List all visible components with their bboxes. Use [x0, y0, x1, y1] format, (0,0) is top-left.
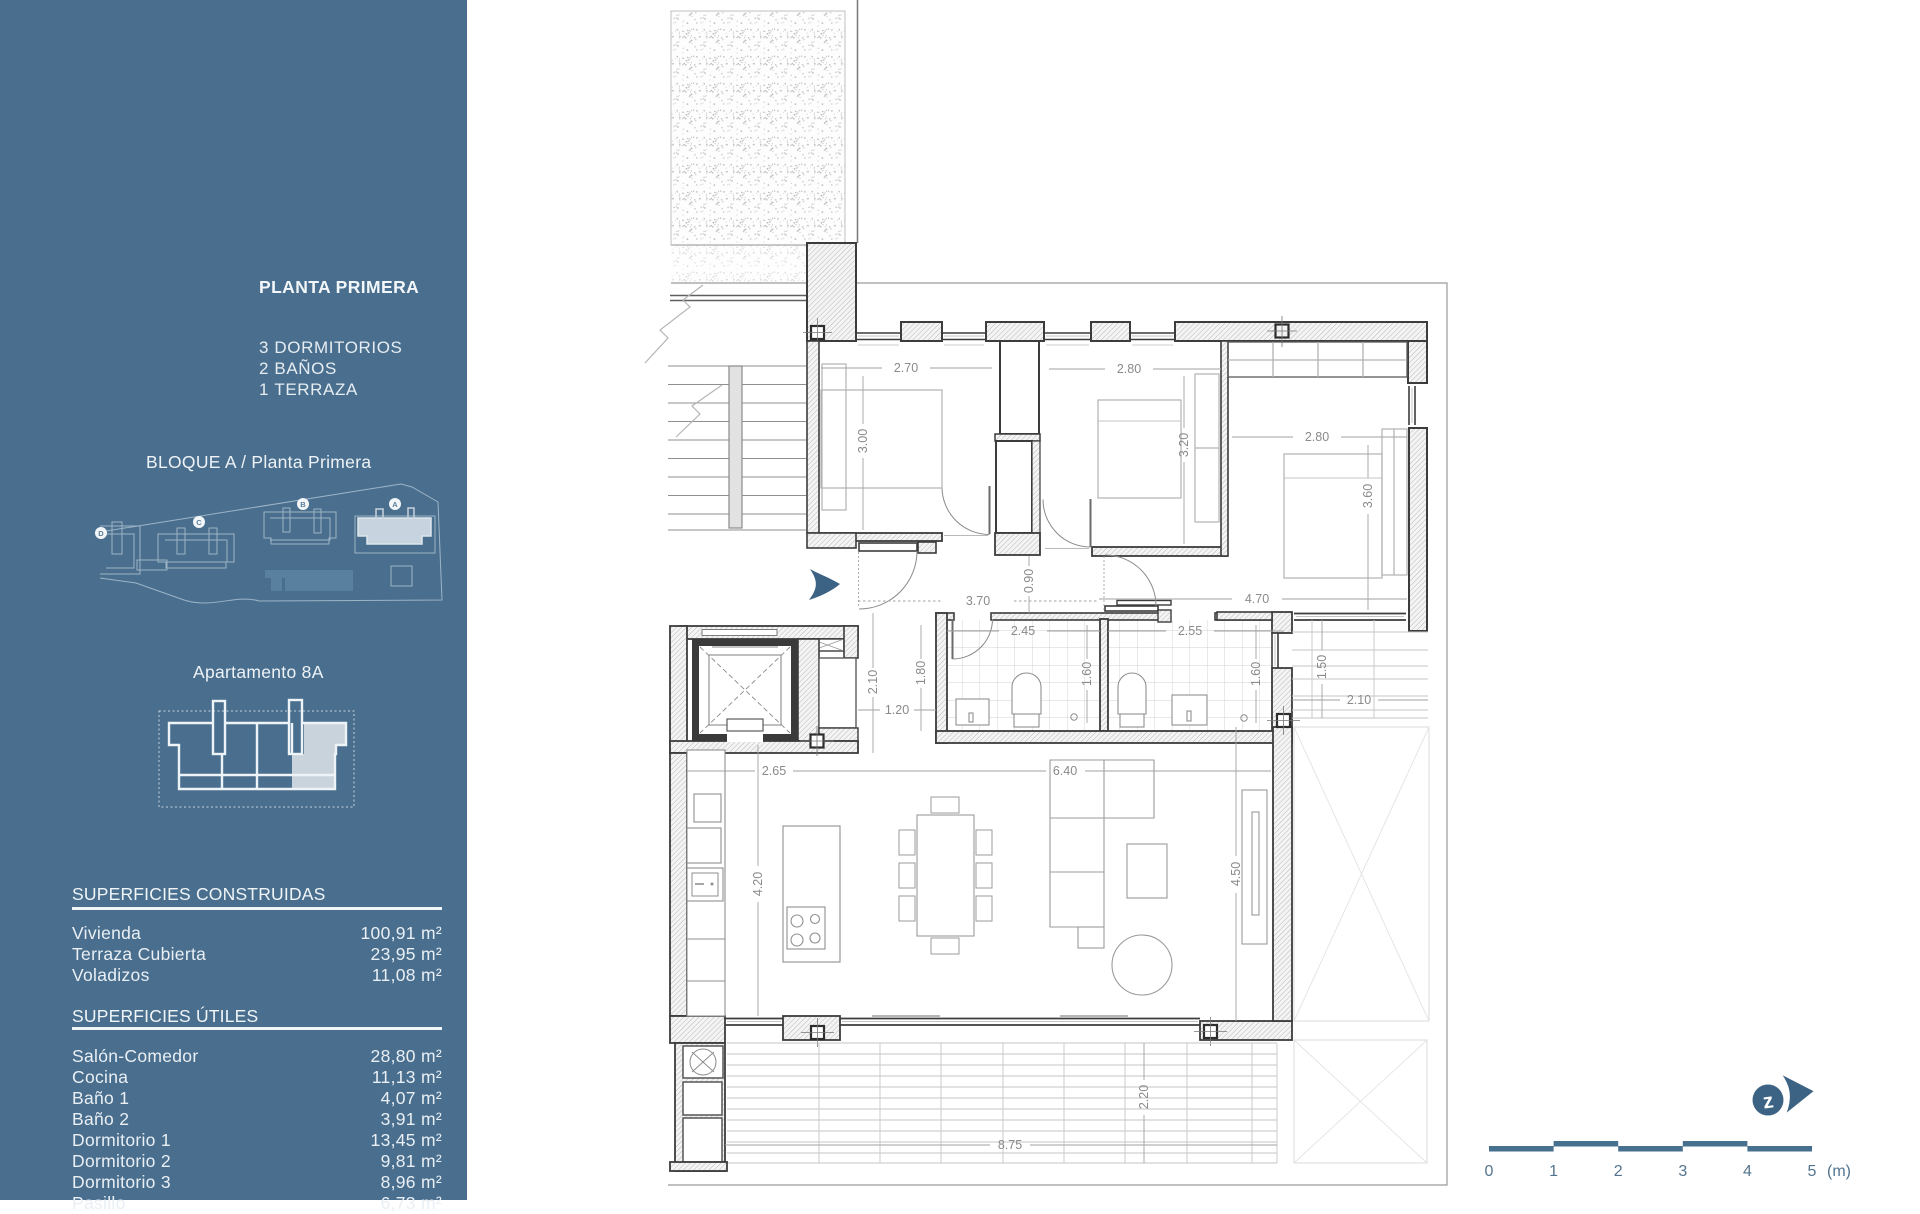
- svg-text:1.80: 1.80: [914, 661, 928, 685]
- svg-text:2.45: 2.45: [1011, 624, 1035, 638]
- svg-text:4: 4: [1743, 1163, 1752, 1180]
- svg-text:3.20: 3.20: [1177, 433, 1191, 457]
- svg-text:0: 0: [1485, 1163, 1494, 1180]
- svg-text:1: 1: [1549, 1163, 1558, 1180]
- svg-text:2.65: 2.65: [762, 764, 786, 778]
- svg-text:2: 2: [1614, 1163, 1623, 1180]
- svg-text:4.20: 4.20: [751, 872, 765, 896]
- svg-text:2.55: 2.55: [1178, 624, 1202, 638]
- svg-text:2.10: 2.10: [1347, 693, 1371, 707]
- svg-text:3.70: 3.70: [966, 594, 990, 608]
- svg-text:2.20: 2.20: [1137, 1085, 1151, 1109]
- svg-text:0.90: 0.90: [1022, 569, 1036, 593]
- svg-text:4.50: 4.50: [1229, 862, 1243, 886]
- svg-text:1.50: 1.50: [1315, 655, 1329, 679]
- svg-text:2.70: 2.70: [894, 361, 918, 375]
- svg-text:2.10: 2.10: [866, 670, 880, 694]
- svg-text:4.70: 4.70: [1245, 592, 1269, 606]
- svg-text:8.75: 8.75: [998, 1138, 1022, 1152]
- svg-text:3.00: 3.00: [856, 429, 870, 453]
- svg-text:6.40: 6.40: [1053, 764, 1077, 778]
- svg-text:2.80: 2.80: [1117, 362, 1141, 376]
- svg-text:1.20: 1.20: [885, 703, 909, 717]
- svg-text:2.80: 2.80: [1305, 430, 1329, 444]
- svg-text:1.60: 1.60: [1249, 662, 1263, 686]
- svg-text:1.60: 1.60: [1080, 662, 1094, 686]
- svg-text:(m): (m): [1827, 1163, 1851, 1180]
- svg-text:5: 5: [1808, 1163, 1817, 1180]
- svg-text:3.60: 3.60: [1361, 484, 1375, 508]
- svg-text:3: 3: [1678, 1163, 1687, 1180]
